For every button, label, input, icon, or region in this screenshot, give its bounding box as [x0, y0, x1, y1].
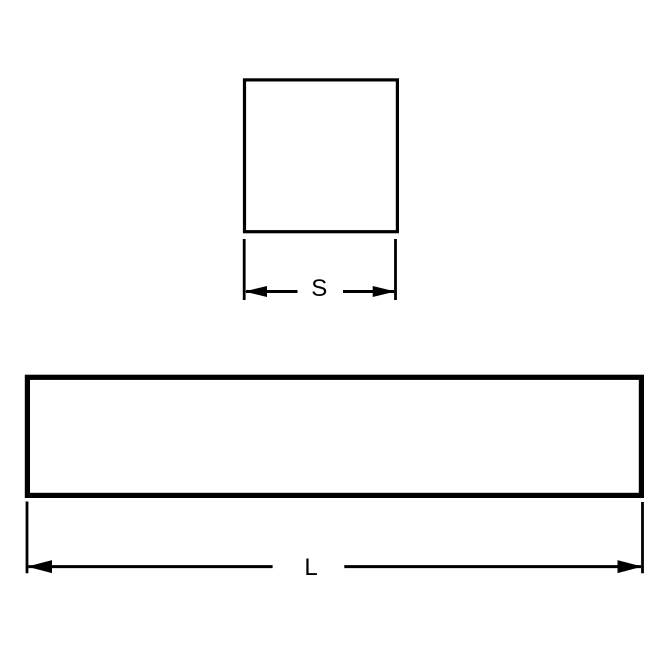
svg-text:S: S	[311, 275, 327, 302]
svg-text:L: L	[304, 554, 317, 581]
